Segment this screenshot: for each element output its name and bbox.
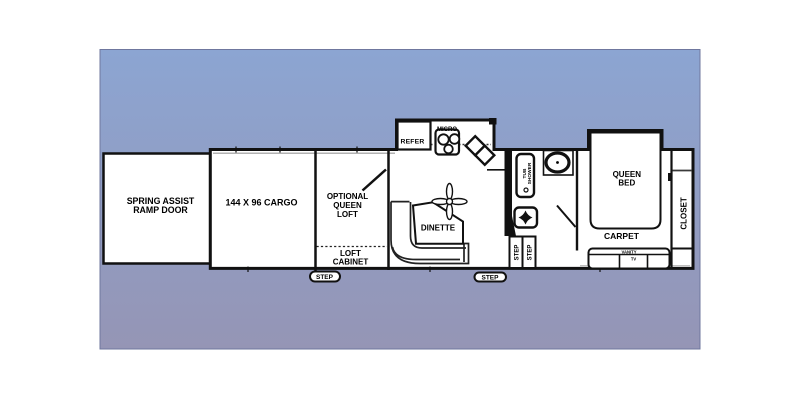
svg-text:STEP: STEP <box>515 245 521 261</box>
svg-text:LOFT: LOFT <box>337 210 358 219</box>
svg-text:144 X 96 CARGO: 144 X 96 CARGO <box>225 197 297 207</box>
svg-text:STEP: STEP <box>528 245 534 261</box>
svg-text:RAMP DOOR: RAMP DOOR <box>133 205 188 215</box>
svg-text:OPTIONAL: OPTIONAL <box>327 192 368 201</box>
svg-text:MICRO: MICRO <box>437 127 457 133</box>
svg-text:TV: TV <box>631 257 637 262</box>
svg-text:SHOWER: SHOWER <box>527 162 533 184</box>
svg-text:STEP: STEP <box>316 274 334 281</box>
svg-text:QUEEN: QUEEN <box>613 170 642 179</box>
svg-text:VANITY: VANITY <box>621 250 636 255</box>
svg-text:REFER: REFER <box>400 139 424 146</box>
svg-text:STEP: STEP <box>482 275 500 282</box>
svg-text:QUEEN: QUEEN <box>333 201 362 210</box>
svg-text:CLOSET: CLOSET <box>679 197 688 230</box>
svg-text:BED: BED <box>618 179 635 188</box>
svg-text:DINETTE: DINETTE <box>421 223 456 232</box>
svg-text:CARPET: CARPET <box>604 231 640 241</box>
svg-text:CABINET: CABINET <box>333 258 369 267</box>
